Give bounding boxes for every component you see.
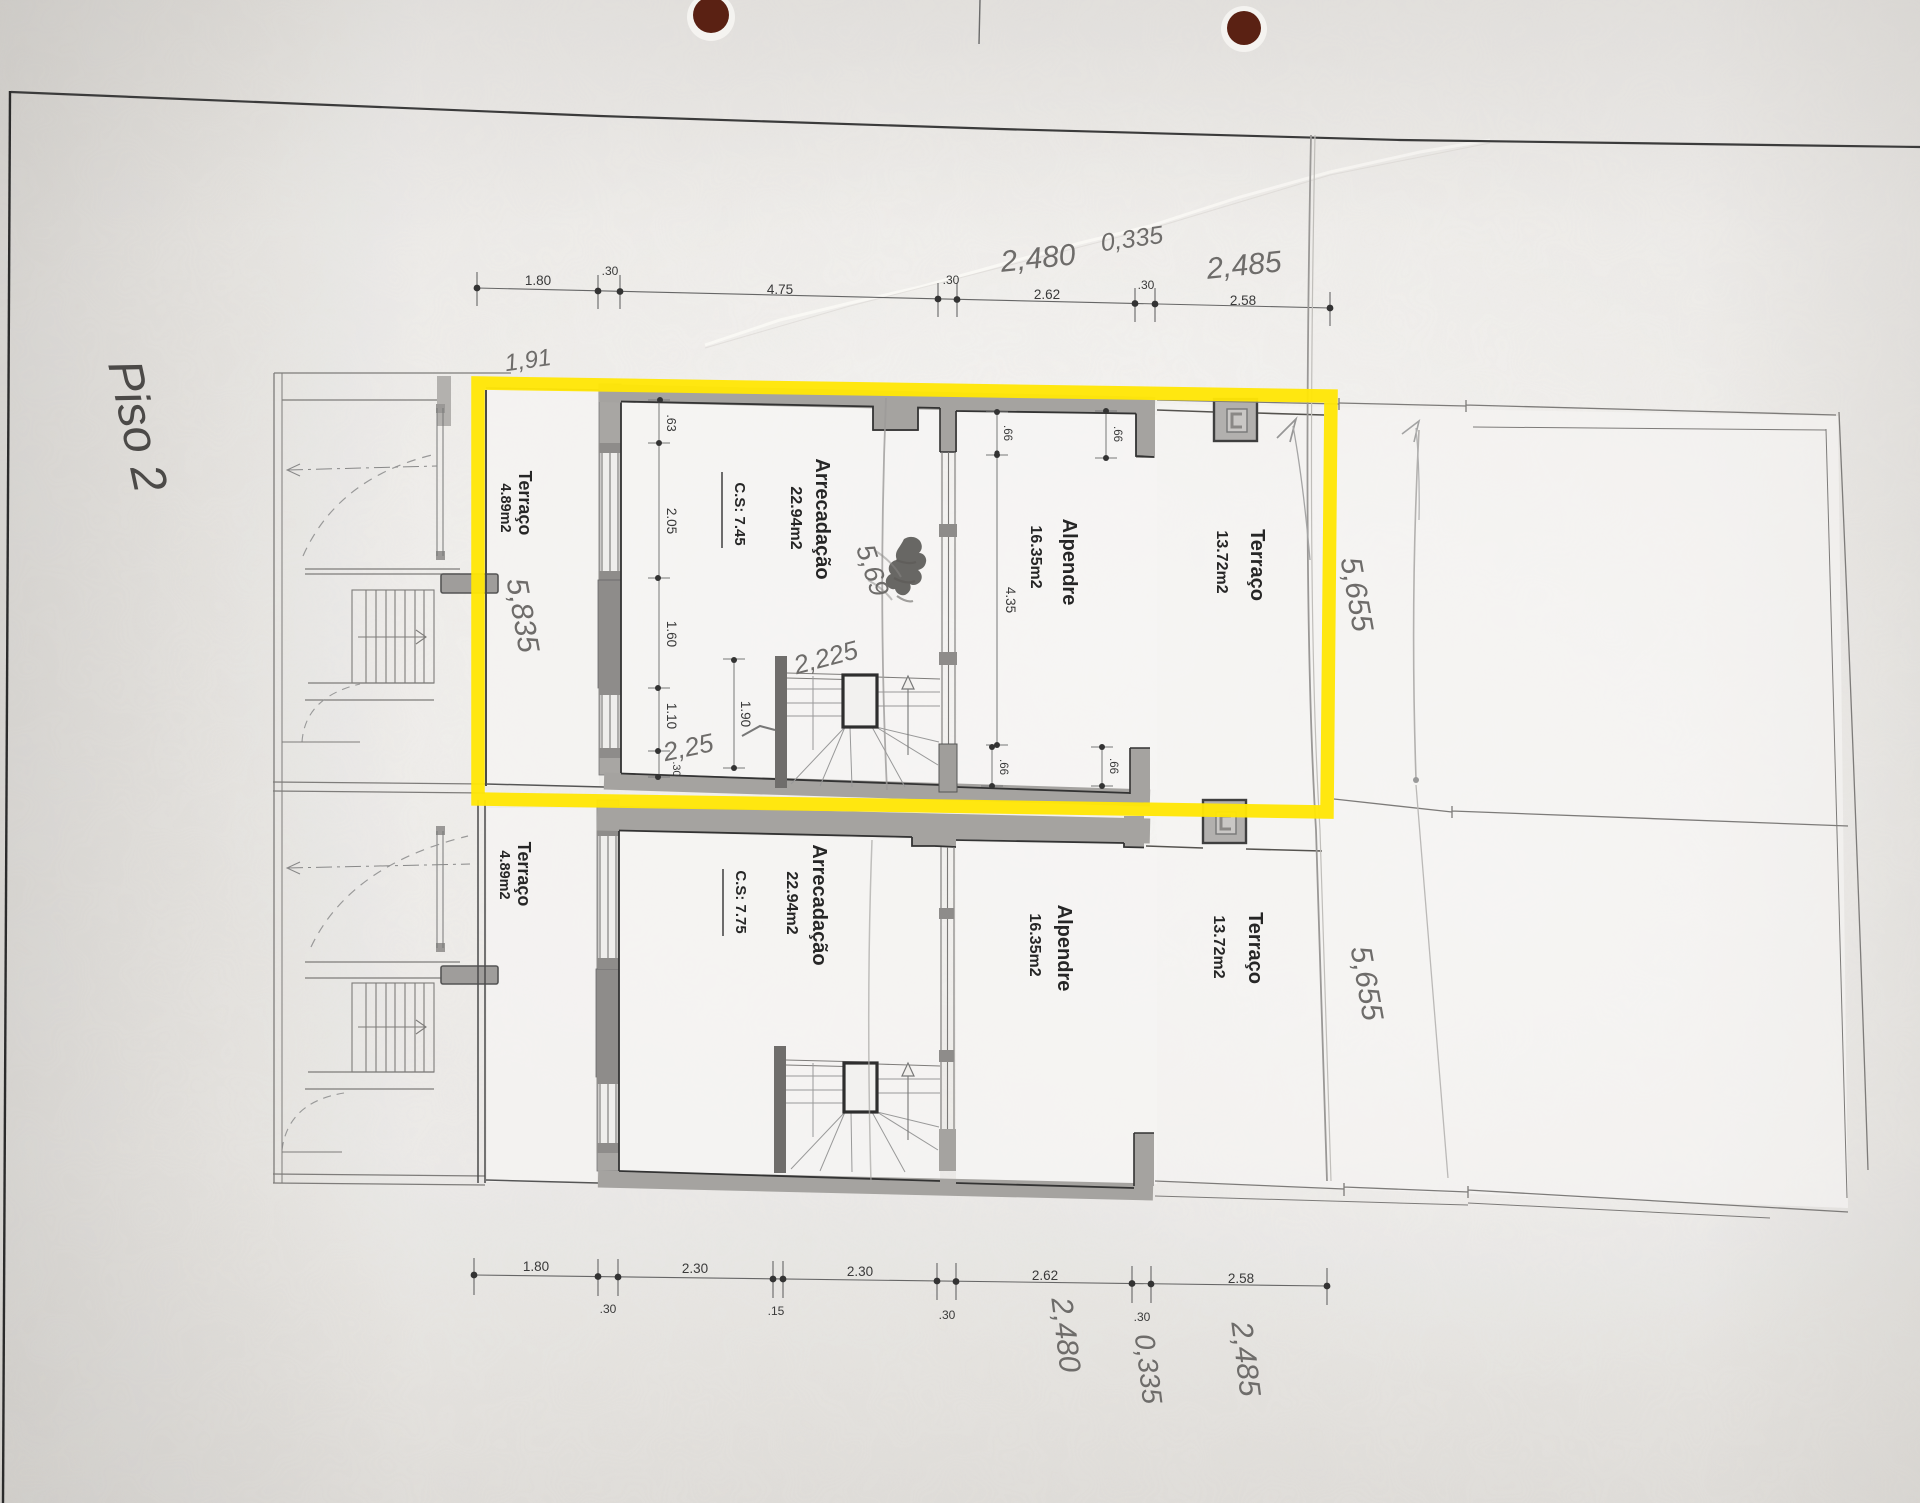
svg-text:4.35: 4.35 [1003, 587, 1018, 613]
svg-text:.63: .63 [664, 414, 678, 431]
svg-text:16.35m2: 16.35m2 [1026, 913, 1043, 976]
svg-text:4.89m2: 4.89m2 [497, 483, 513, 532]
svg-text:Terraço: Terraço [1246, 529, 1268, 601]
svg-text:.15: .15 [768, 1304, 785, 1318]
svg-text:1.90: 1.90 [738, 701, 753, 727]
svg-text:C.S: 7.75: C.S: 7.75 [732, 870, 749, 933]
svg-text:2.05: 2.05 [664, 508, 679, 534]
svg-text:Terraço: Terraço [515, 471, 535, 536]
svg-text:22.94m2: 22.94m2 [783, 871, 800, 934]
svg-text:C.S: 7.45: C.S: 7.45 [731, 482, 748, 545]
svg-text:Alpendre: Alpendre [1058, 519, 1080, 606]
svg-text:.30: .30 [602, 264, 619, 278]
svg-text:.66: .66 [1107, 758, 1119, 774]
svg-text:16.35m2: 16.35m2 [1027, 525, 1044, 588]
svg-text:Arrecadação: Arrecadação [808, 844, 830, 965]
svg-text:1.80: 1.80 [523, 1259, 549, 1274]
svg-text:1.10: 1.10 [664, 703, 679, 729]
svg-text:4.89m2: 4.89m2 [496, 850, 512, 899]
svg-text:.30: .30 [939, 1308, 956, 1322]
svg-text:2.30: 2.30 [682, 1261, 708, 1276]
svg-text:2.62: 2.62 [1034, 287, 1060, 302]
svg-text:Arrecadação: Arrecadação [811, 458, 833, 579]
svg-text:.30: .30 [1138, 278, 1155, 292]
svg-text:.66: .66 [1001, 425, 1013, 441]
svg-text:.30: .30 [943, 273, 960, 287]
svg-text:13.72m2: 13.72m2 [1213, 530, 1230, 593]
svg-text:2.58: 2.58 [1228, 1271, 1254, 1286]
svg-text:.66: .66 [997, 759, 1009, 775]
svg-text:2.30: 2.30 [847, 1264, 873, 1279]
svg-text:1.60: 1.60 [664, 621, 679, 647]
svg-text:.30: .30 [600, 1302, 617, 1316]
svg-text:.66: .66 [1111, 426, 1123, 442]
svg-text:13.72m2: 13.72m2 [1210, 915, 1227, 978]
svg-text:Alpendre: Alpendre [1053, 905, 1075, 992]
svg-text:Terraço: Terraço [514, 842, 534, 907]
svg-text:2.58: 2.58 [1230, 293, 1256, 308]
svg-text:22.94m2: 22.94m2 [787, 486, 804, 549]
svg-text:2.62: 2.62 [1032, 1268, 1058, 1283]
svg-text:Terraço: Terraço [1244, 912, 1266, 984]
svg-text:4.75: 4.75 [767, 282, 793, 297]
svg-text:.30: .30 [1134, 1310, 1151, 1324]
svg-text:1.80: 1.80 [525, 273, 551, 288]
